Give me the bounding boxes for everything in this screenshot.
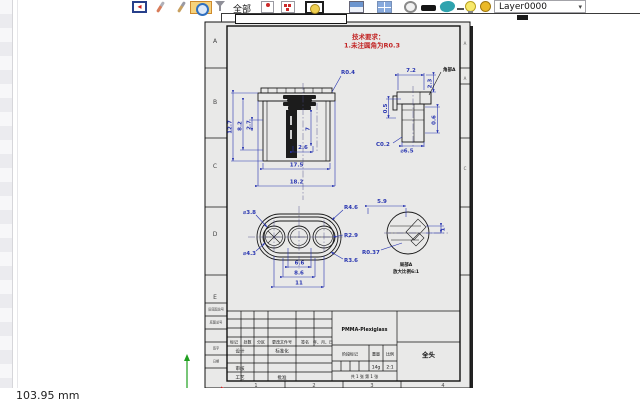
detail-label: 局部A: [400, 261, 413, 268]
sphere-icon[interactable]: [480, 1, 491, 12]
dim-7: 7: [306, 127, 312, 131]
window-icon[interactable]: [349, 1, 364, 13]
black-bar-icon[interactable]: [421, 5, 436, 11]
dim-18-2: 18.2: [290, 180, 304, 186]
corner-a-label: 角部A: [443, 66, 456, 73]
brush-icon[interactable]: [154, 1, 168, 13]
layer-dropdown[interactable]: Layer0000 ▾: [494, 0, 586, 13]
scale-label: 比例: [386, 351, 394, 357]
panel-divider: [17, 0, 18, 403]
dim-1: 1: [441, 227, 447, 231]
standardize-label: 标准化: [275, 348, 289, 355]
stage-mark-label: 阶段标记: [342, 351, 358, 357]
coordinate-readout: 103.95 mm: [16, 389, 79, 402]
dim-dia3-8: ⌀3.8: [243, 210, 256, 216]
dim-12-7: 12.7: [228, 120, 234, 134]
dim-11: 11: [295, 281, 303, 287]
dim-r3-6: R3.6: [344, 258, 358, 264]
dim-dia6-5: ⌀6.5: [400, 149, 413, 155]
zone-letter: A: [464, 76, 467, 81]
dim-8-6: 8.6: [294, 271, 304, 277]
circle-icon[interactable]: [404, 1, 417, 13]
zone-letter: D: [213, 231, 218, 238]
dim-5-9: 5.9: [377, 199, 387, 205]
part-name: 全头: [421, 350, 436, 359]
dim-8-2: 8.2: [238, 121, 244, 131]
pan-globe-icon[interactable]: [190, 1, 212, 14]
pin-icon[interactable]: [261, 1, 274, 13]
margin-label: 签字: [213, 346, 219, 351]
dim-r0-37: R0.37: [362, 250, 380, 256]
cad-application-window: A B C D E A A C 1 2 3 4 技术要求： 1.未注圆角为R0.…: [0, 0, 640, 403]
chevron-down-icon[interactable]: ▾: [578, 1, 582, 13]
detail-scale-label: 放大比例6:1: [392, 268, 419, 275]
dim-r4-6: R4.6: [344, 205, 358, 211]
filter-all-dropdown[interactable]: 全部: [233, 2, 251, 15]
dim-17-5: 17.5: [290, 163, 304, 169]
zone-letter: C: [213, 163, 217, 170]
margin-label: 底图总号: [210, 320, 223, 325]
rev-header: 分区: [257, 339, 265, 345]
tech-note-line: 1.未注圆角为R0.3: [344, 41, 400, 50]
zone-letter: B: [213, 99, 217, 106]
floating-toolbar-frame: [235, 14, 347, 24]
side-panel-strip[interactable]: [0, 0, 13, 403]
dim-r2-9: R2.9: [344, 233, 358, 239]
rev-header: 处数: [244, 339, 252, 345]
exit-icon[interactable]: ◂: [132, 1, 147, 13]
zone-letter: E: [213, 294, 217, 301]
dim-0-6: 0.6: [432, 115, 438, 125]
dim-2-6: 2.6: [298, 145, 308, 151]
rev-header: 标记: [230, 339, 238, 345]
dim-6-6: 6.6: [295, 261, 305, 267]
zone-letter: C: [464, 166, 467, 171]
check-label: 审核: [236, 365, 245, 372]
drawing-canvas[interactable]: A B C D E A A C 1 2 3 4 技术要求： 1.未注圆角为R0.…: [0, 0, 640, 403]
scale-value: 2:1: [386, 365, 393, 371]
bulb-icon[interactable]: [465, 1, 476, 13]
funnel-icon[interactable]: [214, 1, 226, 13]
layer-dropdown-value: Layer0000: [499, 2, 547, 12]
dim-c0-2: C0.2: [376, 142, 390, 148]
zone-letter: A: [464, 41, 467, 46]
dim-dia4-3: ⌀4.3: [243, 251, 256, 257]
stamp-icon[interactable]: [281, 1, 295, 13]
rev-header: 更改文件号: [272, 339, 292, 345]
dim-7-2: 7.2: [406, 68, 416, 74]
dim-2-3: 2.3: [428, 78, 434, 88]
toolbar-separator-vertical: [221, 13, 222, 22]
dim-0-5: 0.5: [383, 103, 389, 113]
weight-label: 重量: [372, 351, 380, 357]
status-bar: 103.95 mm: [0, 388, 640, 403]
toolbar-fragment: [517, 15, 528, 20]
grid-icon[interactable]: [377, 1, 392, 13]
process-label: 工艺: [236, 375, 245, 381]
paint-brush-icon[interactable]: [175, 1, 189, 13]
framed-circle-icon[interactable]: [305, 1, 324, 14]
weight-value: 14g: [372, 365, 381, 371]
rev-header: 年、月、日: [313, 339, 333, 345]
dash-icon: [457, 8, 464, 10]
rev-header: 签名: [301, 339, 309, 345]
margin-label: 旧底图总号: [208, 307, 224, 312]
paper-sheet: [205, 22, 473, 391]
material-name: PMMA-Plexiglass: [342, 327, 388, 333]
margin-label: 日期: [213, 359, 219, 364]
dim-2-7: 2.7: [247, 120, 253, 130]
tech-note-title: 技术要求：: [352, 32, 385, 41]
design-label: 设计: [236, 348, 245, 355]
sheet-count: 共 1 张 第 1 张: [351, 373, 378, 379]
approve-label: 批准: [278, 374, 287, 381]
dim-r0-4: R0.4: [341, 70, 355, 76]
